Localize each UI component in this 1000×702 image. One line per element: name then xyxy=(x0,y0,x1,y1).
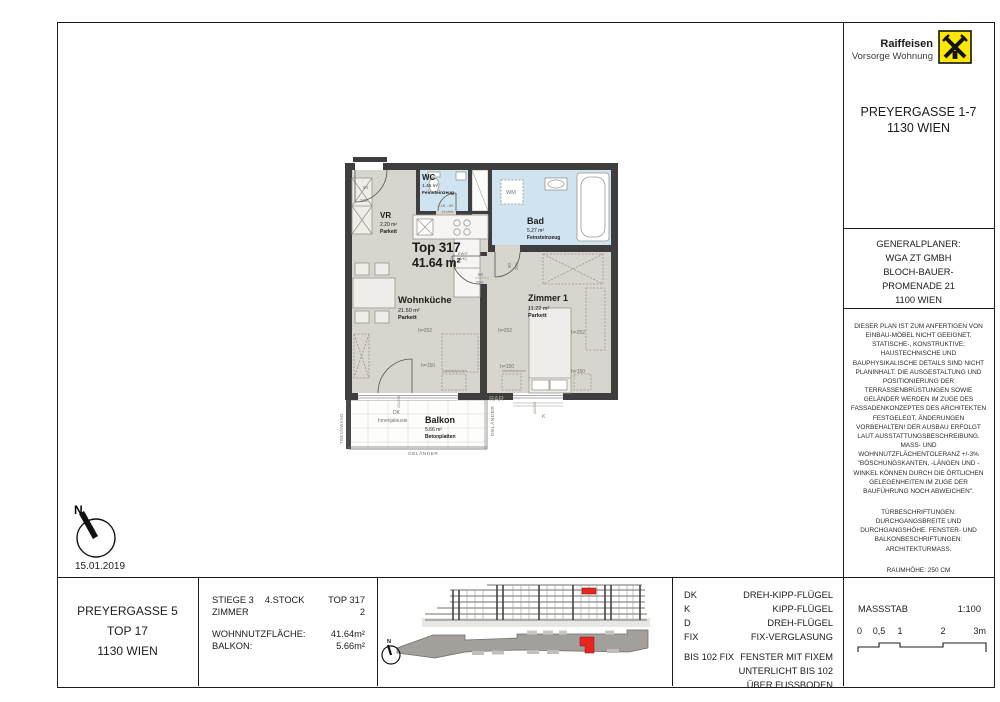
info-wnf-value: 41.64m² xyxy=(331,628,365,640)
svg-text:Wohnküche: Wohnküche xyxy=(398,295,452,306)
svg-text:5.66 m²: 5.66 m² xyxy=(425,427,442,433)
svg-text:60: 60 xyxy=(363,185,369,190)
svg-text:RAR: RAR xyxy=(489,396,504,403)
raiffeisen-logo-icon xyxy=(938,30,972,64)
svg-text:21.50 m²: 21.50 m² xyxy=(398,308,420,314)
svg-text:252/239: 252/239 xyxy=(397,396,401,408)
svg-text:Zimmer 1: Zimmer 1 xyxy=(528,293,568,303)
building-elevation-siteplan: N xyxy=(377,577,672,687)
svg-text:h=252: h=252 xyxy=(418,328,432,334)
svg-text:80: 80 xyxy=(478,272,484,277)
unit-area: 41.64 m² xyxy=(412,256,460,270)
balcony-door-window xyxy=(358,393,458,400)
info-balkon-value: 5.66m² xyxy=(336,640,365,652)
scale-ratio: 1:100 xyxy=(958,603,981,615)
svg-text:h=150: h=150 xyxy=(571,369,585,375)
svg-text:200: 200 xyxy=(514,262,519,270)
generalplaner-title: GENERALPLANER: xyxy=(843,237,994,251)
info-balkon-label: BALKON: xyxy=(212,640,252,652)
titleblock-address: PREYERGASSE 5 TOP 17 1130 WIEN xyxy=(57,577,198,687)
svg-text:200: 200 xyxy=(360,198,368,203)
right-column-divider-2 xyxy=(843,308,994,309)
zimmer-window xyxy=(513,393,563,400)
brand-name: Raiffeisen xyxy=(845,38,933,50)
legend-row: FIXFIX-VERGLASUNG xyxy=(684,631,833,645)
generalplaner-line: 1100 WIEN xyxy=(843,293,994,307)
legend-note-abbr: BIS 102 FIX xyxy=(684,651,734,693)
floor-plan: Top 317 41.64 m² VR 2.20 m² Parkett WC 1… xyxy=(338,156,628,456)
notes-paragraph-1: DIESER PLAN IST ZUM ANFERTIGEN VON EINBA… xyxy=(849,322,988,496)
info-row-wnf: WOHNNUTZFLÄCHE: 41.64m² xyxy=(212,628,365,640)
svg-text:Parkett: Parkett xyxy=(380,229,397,235)
address-line-3: 1130 WIEN xyxy=(57,642,198,662)
right-column-divider-1 xyxy=(843,228,994,229)
legend-note-lines: FENSTER MIT FIXEM UNTERLICHT BIS 102 ÜBE… xyxy=(734,651,833,693)
svg-text:Feinsteinzeug: Feinsteinzeug xyxy=(422,190,454,196)
plan-sheet: { "header": { "brand_line1": "Raiffeisen… xyxy=(0,0,1000,702)
highlighted-unit-elevation xyxy=(582,588,596,594)
project-title: PREYERGASSE 1-7 xyxy=(843,105,994,119)
svg-text:Parkett: Parkett xyxy=(398,315,417,321)
north-arrow: N xyxy=(66,498,130,560)
svg-text:Nachtkästchen: Nachtkästchen xyxy=(502,369,526,373)
scale-block: MASSSTAB 1:100 0 0,5 1 2 3m xyxy=(843,577,994,687)
svg-text:GELÄNDER: GELÄNDER xyxy=(489,406,496,436)
project-city: 1130 WIEN xyxy=(843,121,994,135)
address-line-1: PREYERGASSE 5 xyxy=(57,602,198,622)
svg-text:T1B - 80: T1B - 80 xyxy=(438,203,454,208)
info-stiege: STIEGE 3 xyxy=(212,594,254,606)
svg-text:11.22 m²: 11.22 m² xyxy=(528,306,549,312)
svg-text:200: 200 xyxy=(476,280,484,285)
generalplaner-block: GENERALPLANER: WGA ZT GMBH BLOCH-BAUER- … xyxy=(843,237,994,307)
address-line-2: TOP 17 xyxy=(57,622,198,642)
svg-text:Innenjalousie: Innenjalousie xyxy=(378,418,408,424)
balcony xyxy=(346,395,487,449)
generalplaner-line: WGA ZT GMBH xyxy=(843,251,994,265)
svg-text:DK: DK xyxy=(393,410,401,416)
scale-label: MASSSTAB xyxy=(858,603,908,615)
svg-text:5.27 m²: 5.27 m² xyxy=(527,228,544,234)
svg-text:Bad: Bad xyxy=(527,216,544,226)
balcony-partition-wall xyxy=(346,396,351,449)
svg-text:WC: WC xyxy=(422,173,436,182)
svg-text:Feinsteinzeug: Feinsteinzeug xyxy=(527,235,560,241)
svg-text:(4/K): (4/K) xyxy=(458,256,467,261)
svg-text:252/239: 252/239 xyxy=(533,402,537,414)
info-zimmer-value: 2 xyxy=(360,606,365,618)
legend-row: DDREH-FLÜGEL xyxy=(684,617,833,631)
info-row-stiege: STIEGE 3 4.STOCK TOP 317 xyxy=(212,594,365,606)
svg-text:K: K xyxy=(542,414,546,420)
legend-row: KKIPP-FLÜGEL xyxy=(684,603,833,617)
info-wnf-label: WOHNNUTZFLÄCHE: xyxy=(212,628,305,640)
svg-text:H-Vert: H-Vert xyxy=(442,209,454,214)
titleblock-info: STIEGE 3 4.STOCK TOP 317 ZIMMER 2 WOHNNU… xyxy=(198,577,377,687)
plan-notes: DIESER PLAN IST ZUM ANFERTIGEN VON EINBA… xyxy=(849,322,988,584)
scale-bar xyxy=(857,639,988,654)
svg-text:Parkett: Parkett xyxy=(528,313,547,319)
generalplaner-line: PROMENADE 21 xyxy=(843,279,994,293)
legend-note: BIS 102 FIX FENSTER MIT FIXEM UNTERLICHT… xyxy=(684,651,833,693)
scale-ticks: 0 0,5 1 2 3m xyxy=(857,626,987,638)
svg-text:2.20 m²: 2.20 m² xyxy=(380,222,397,228)
window-legend: DKDREH-KIPP-FLÜGEL KKIPP-FLÜGEL DDREH-FL… xyxy=(672,577,843,687)
svg-text:h=252: h=252 xyxy=(498,328,512,334)
svg-text:GELÄNDER: GELÄNDER xyxy=(408,450,438,456)
svg-text:90: 90 xyxy=(507,262,512,268)
svg-text:h=150: h=150 xyxy=(421,363,435,369)
plan-date: 15.01.2019 xyxy=(75,561,125,572)
svg-text:VR: VR xyxy=(380,211,391,220)
notes-paragraph-2: TÜRBESCHRIFTUNGEN: DURCHGANGSBREITE UND … xyxy=(849,508,988,554)
svg-text:WM: WM xyxy=(506,190,516,196)
svg-text:1.45 m²: 1.45 m² xyxy=(422,183,439,189)
info-row-balkon: BALKON: 5.66m² xyxy=(212,640,365,652)
info-zimmer-label: ZIMMER xyxy=(212,606,249,618)
legend-row: DKDREH-KIPP-FLÜGEL xyxy=(684,589,833,603)
svg-text:h=252: h=252 xyxy=(571,330,585,336)
info-stock: 4.STOCK xyxy=(265,594,305,606)
brand-subtitle: Vorsorge Wohnung xyxy=(845,51,933,62)
notes-paragraph-3: RAUMHÖHE: 250 CM xyxy=(849,566,988,575)
svg-text:Balkon: Balkon xyxy=(425,415,455,425)
svg-text:N: N xyxy=(387,639,391,645)
svg-text:TRENNWAND: TRENNWAND xyxy=(339,413,344,444)
svg-text:Nachtkästchen: Nachtkästchen xyxy=(443,369,467,373)
unit-title: Top 317 xyxy=(412,240,461,255)
svg-text:Betonplatten: Betonplatten xyxy=(425,434,456,440)
info-row-zimmer: ZIMMER 2 xyxy=(212,606,365,618)
info-top: TOP 317 xyxy=(328,594,365,606)
scale-title-row: MASSSTAB 1:100 xyxy=(843,577,994,615)
generalplaner-line: BLOCH-BAUER- xyxy=(843,265,994,279)
